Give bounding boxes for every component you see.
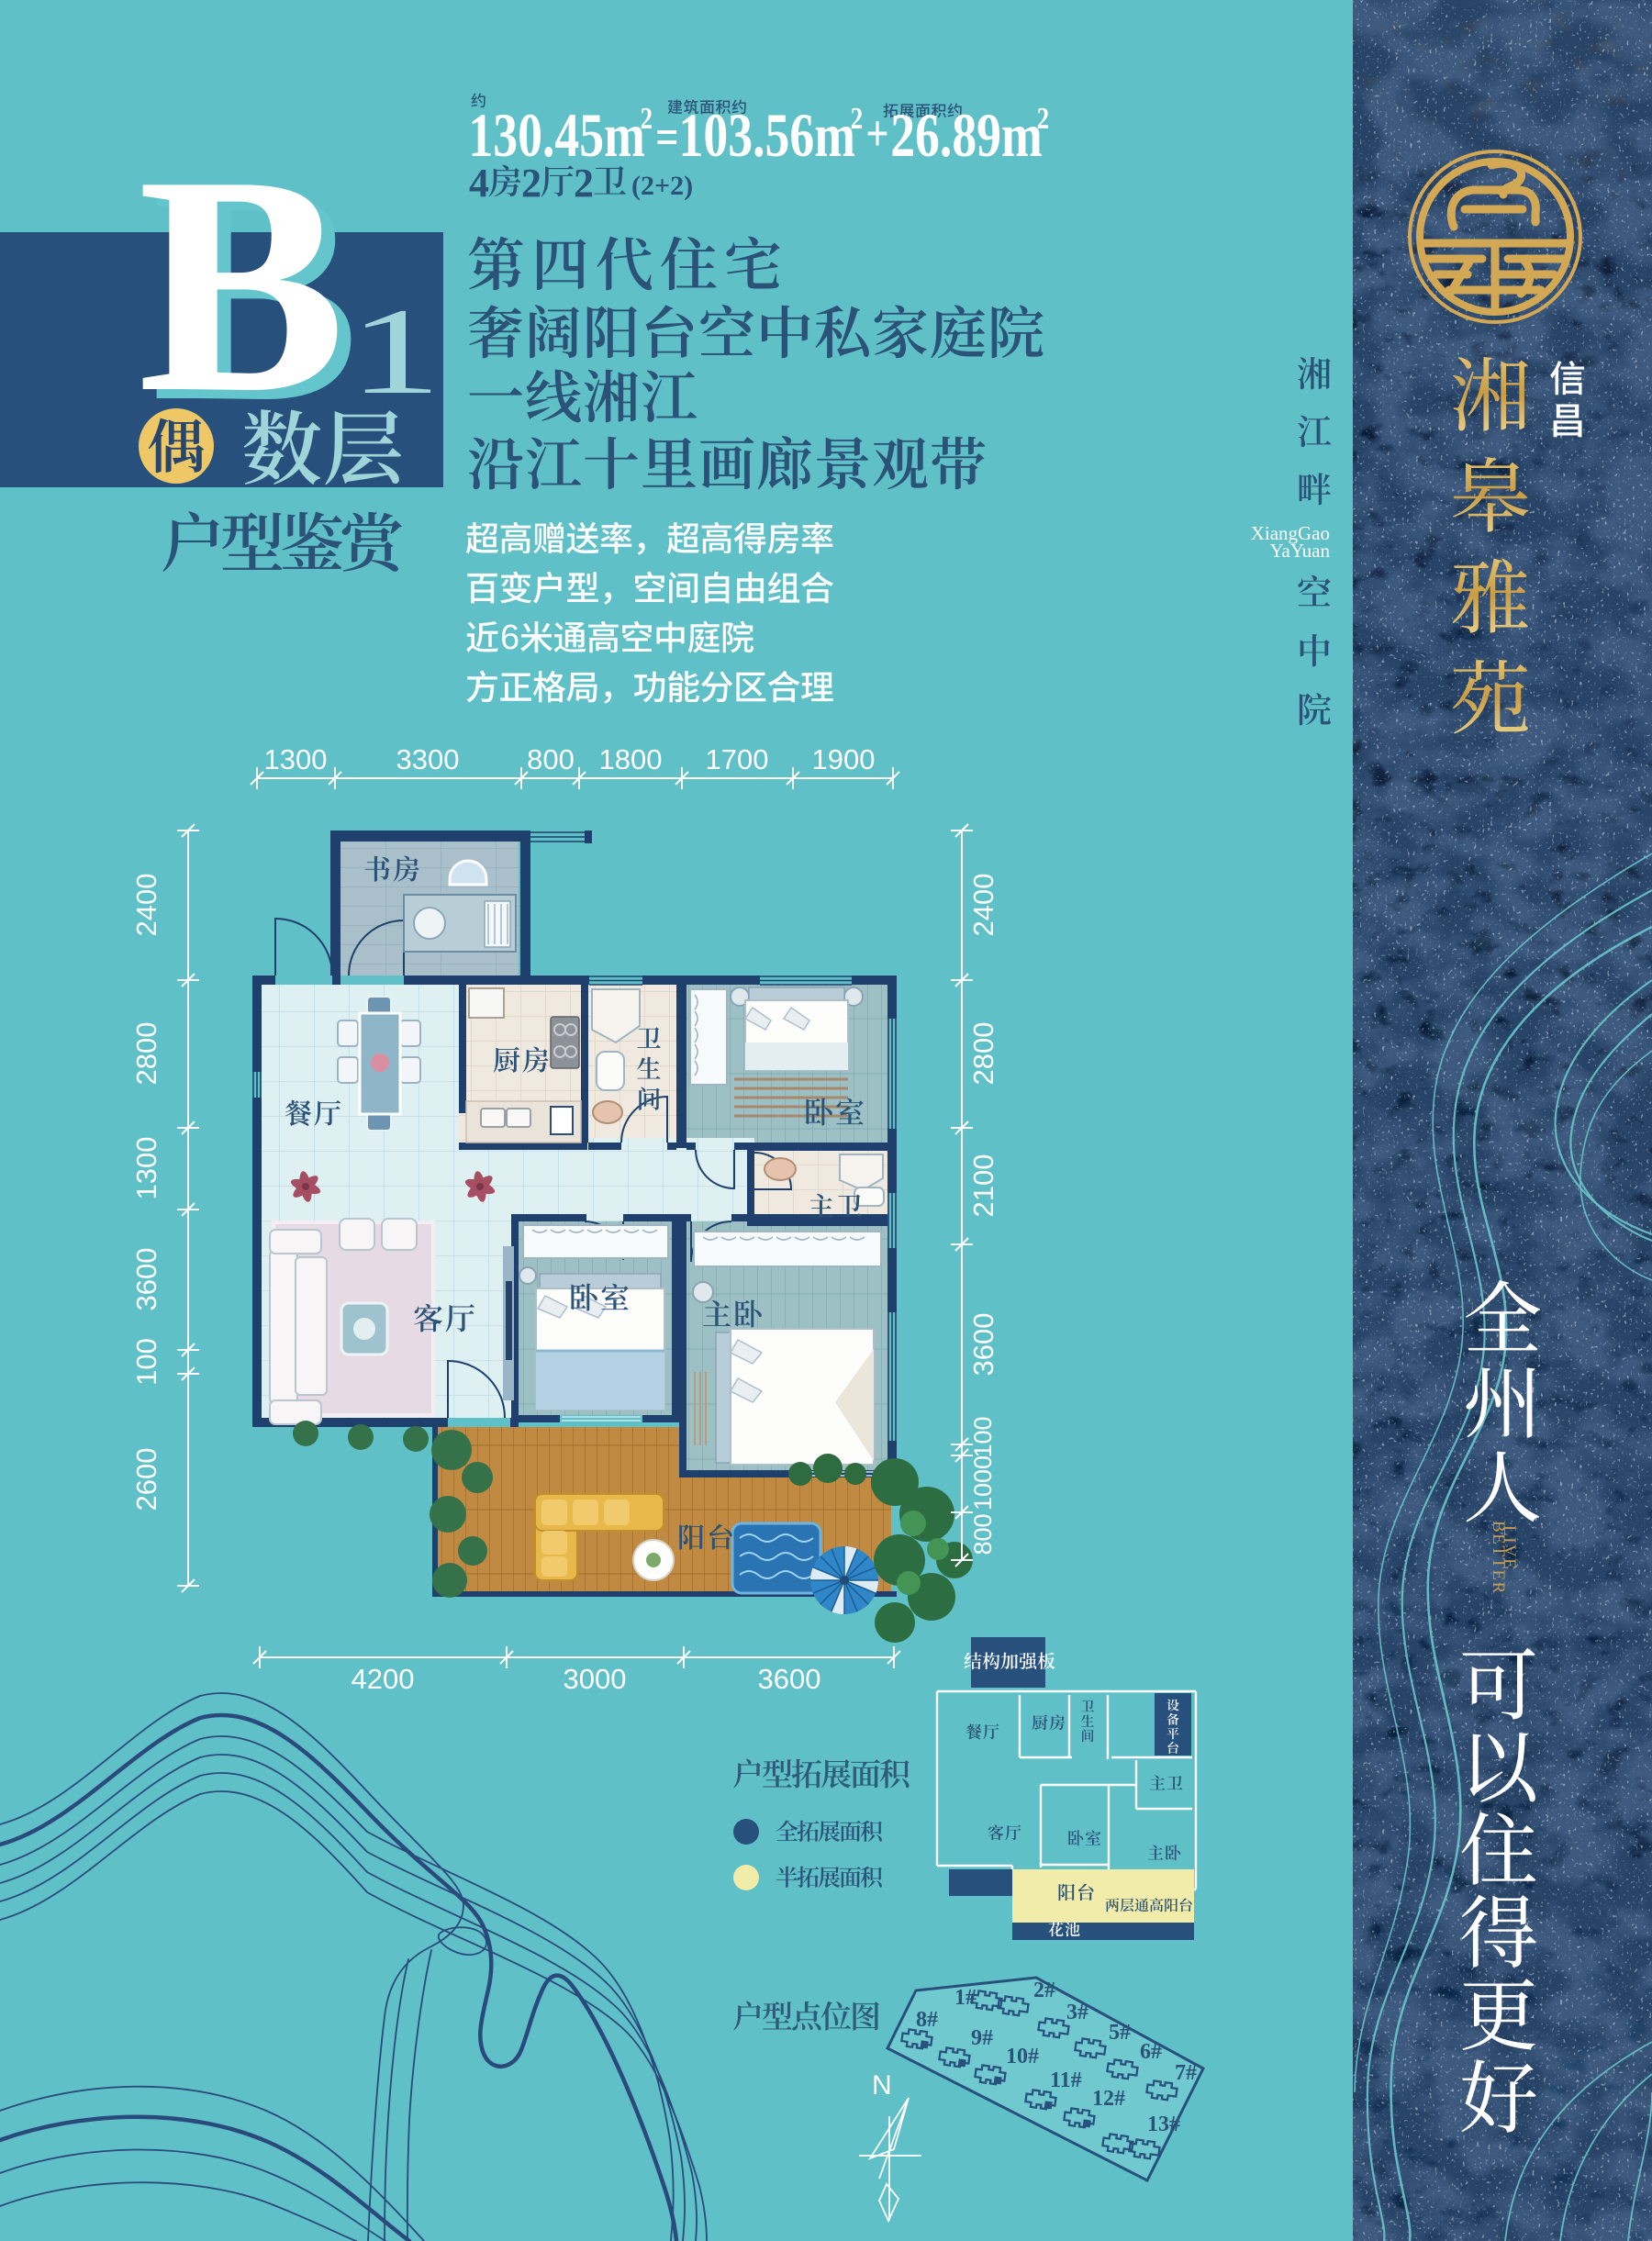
svg-text:3000: 3000 <box>564 1663 627 1695</box>
svg-text:1900: 1900 <box>812 743 876 775</box>
svg-text:2400: 2400 <box>967 874 999 937</box>
svg-text:2#: 2# <box>1033 1979 1055 2002</box>
svg-text:3600: 3600 <box>967 1313 999 1377</box>
svg-text:1: 1 <box>349 284 441 420</box>
svg-text:6: 6 <box>500 619 519 657</box>
svg-text:B: B <box>138 111 346 457</box>
svg-text:2800: 2800 <box>130 1022 162 1086</box>
svg-text:1#: 1# <box>954 1986 977 2010</box>
svg-text:3300: 3300 <box>396 743 460 775</box>
svg-text:N: N <box>872 2070 892 2101</box>
svg-text:4: 4 <box>469 161 489 206</box>
svg-text:800: 800 <box>527 743 575 775</box>
svg-text:26.89m: 26.89m <box>890 101 1043 170</box>
svg-text:3600: 3600 <box>758 1663 821 1695</box>
svg-text:YaYuan: YaYuan <box>1269 540 1330 562</box>
svg-text:6#: 6# <box>1140 2040 1162 2064</box>
svg-text:(2+2): (2+2) <box>631 171 693 201</box>
svg-text:10#: 10# <box>1006 2045 1039 2068</box>
svg-text:2: 2 <box>641 101 653 136</box>
svg-text:3600: 3600 <box>130 1248 162 1311</box>
svg-text:4200: 4200 <box>352 1663 415 1695</box>
svg-text:7#: 7# <box>1175 2061 1197 2085</box>
svg-text:2600: 2600 <box>130 1448 162 1511</box>
svg-text:11#: 11# <box>1050 2068 1082 2092</box>
svg-text:1300: 1300 <box>264 743 328 775</box>
svg-text:2100: 2100 <box>967 1154 999 1218</box>
svg-text:1000: 1000 <box>969 1455 997 1511</box>
svg-text:100: 100 <box>969 1416 997 1457</box>
svg-text:1700: 1700 <box>706 743 769 775</box>
svg-text:130.45m: 130.45m <box>468 101 644 170</box>
svg-text:3#: 3# <box>1066 2001 1088 2024</box>
svg-text:100: 100 <box>130 1338 162 1386</box>
svg-text:1300: 1300 <box>130 1137 162 1200</box>
svg-text:=: = <box>655 108 678 165</box>
svg-text:2: 2 <box>1037 101 1049 136</box>
svg-text:8#: 8# <box>916 2008 938 2032</box>
svg-text:+: + <box>865 105 888 162</box>
svg-text:2800: 2800 <box>967 1022 999 1086</box>
svg-text:800: 800 <box>969 1513 997 1555</box>
svg-text:2400: 2400 <box>130 874 162 937</box>
svg-text:2: 2 <box>574 161 594 206</box>
svg-text:103.56m: 103.56m <box>679 101 855 170</box>
svg-text:1800: 1800 <box>599 743 663 775</box>
svg-text:2: 2 <box>851 101 863 136</box>
svg-text:12#: 12# <box>1092 2087 1125 2111</box>
svg-text:9#: 9# <box>971 2026 993 2050</box>
svg-text:2: 2 <box>521 161 541 206</box>
svg-text:13#: 13# <box>1147 2113 1180 2136</box>
svg-text:BETTER: BETTER <box>1489 1521 1508 1595</box>
svg-text:5#: 5# <box>1109 2021 1131 2045</box>
